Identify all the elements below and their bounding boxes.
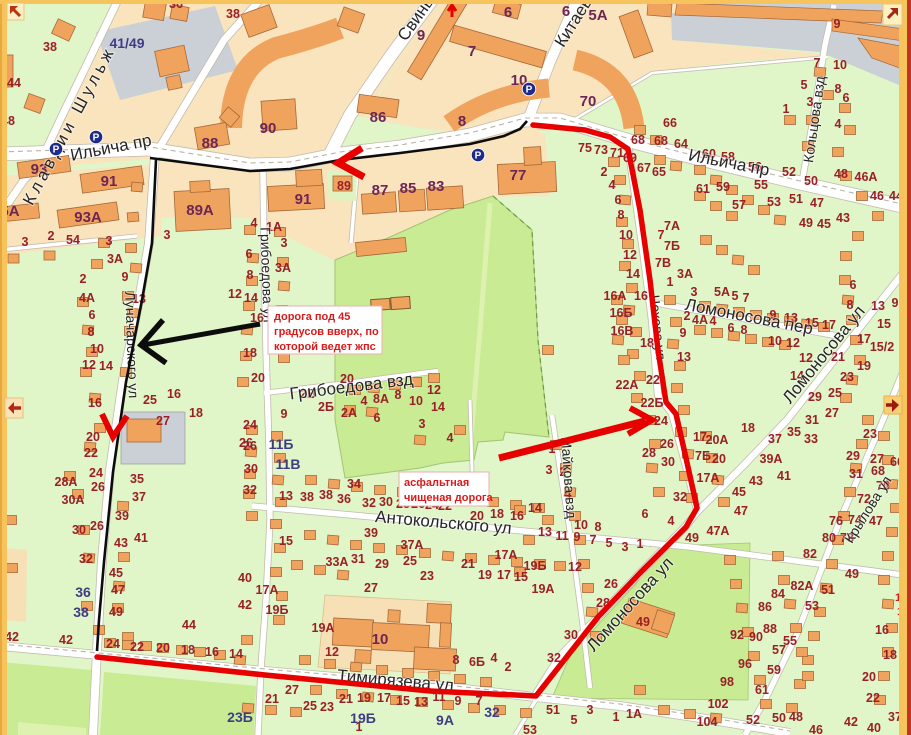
svg-text:25: 25 <box>403 554 417 568</box>
svg-text:18: 18 <box>181 643 195 657</box>
svg-text:27: 27 <box>825 406 839 420</box>
svg-text:88: 88 <box>202 135 219 152</box>
svg-text:3: 3 <box>587 703 594 717</box>
svg-text:4: 4 <box>251 216 258 230</box>
svg-text:10: 10 <box>619 228 633 242</box>
svg-text:85: 85 <box>400 180 417 197</box>
svg-text:14: 14 <box>229 647 243 661</box>
svg-text:30А: 30А <box>62 493 85 507</box>
svg-text:11В: 11В <box>276 456 301 472</box>
svg-text:53: 53 <box>767 195 781 209</box>
svg-text:90: 90 <box>260 120 277 137</box>
svg-text:46А: 46А <box>855 170 878 184</box>
svg-text:7Б: 7Б <box>664 239 680 253</box>
svg-text:33: 33 <box>804 432 818 446</box>
svg-text:17: 17 <box>377 691 391 705</box>
svg-text:49: 49 <box>636 615 650 629</box>
svg-text:102: 102 <box>708 697 729 711</box>
svg-text:12: 12 <box>325 645 339 659</box>
svg-text:98: 98 <box>720 675 734 689</box>
svg-text:89А: 89А <box>186 202 214 219</box>
svg-text:43: 43 <box>749 474 763 488</box>
svg-text:2: 2 <box>48 229 55 243</box>
svg-text:асфальтная: асфальтная <box>404 477 469 489</box>
svg-text:19Б: 19Б <box>350 710 376 726</box>
svg-text:80: 80 <box>822 531 836 545</box>
svg-text:16Б: 16Б <box>610 306 633 320</box>
svg-text:16: 16 <box>634 289 648 303</box>
svg-text:6: 6 <box>850 278 857 292</box>
svg-text:32: 32 <box>484 704 500 720</box>
svg-text:16: 16 <box>875 623 889 637</box>
svg-text:16: 16 <box>167 387 181 401</box>
svg-text:41: 41 <box>134 531 148 545</box>
svg-text:10: 10 <box>574 518 588 532</box>
svg-text:9: 9 <box>892 296 899 310</box>
svg-text:26: 26 <box>660 437 674 451</box>
svg-text:30: 30 <box>244 462 258 476</box>
svg-text:49: 49 <box>685 531 699 545</box>
svg-text:26: 26 <box>90 519 104 533</box>
svg-text:2: 2 <box>80 272 87 286</box>
svg-text:31: 31 <box>849 467 863 481</box>
svg-text:11Б: 11Б <box>269 436 294 452</box>
svg-text:30: 30 <box>564 628 578 642</box>
svg-text:52: 52 <box>746 713 760 727</box>
svg-text:4: 4 <box>491 651 498 665</box>
svg-text:89: 89 <box>337 179 351 193</box>
svg-text:3А: 3А <box>677 267 693 281</box>
svg-text:19: 19 <box>857 359 871 373</box>
svg-text:39А: 39А <box>760 452 783 466</box>
svg-text:73: 73 <box>594 143 608 157</box>
svg-text:42: 42 <box>5 630 19 644</box>
svg-text:32: 32 <box>673 490 687 504</box>
svg-text:12: 12 <box>82 358 96 372</box>
svg-text:35: 35 <box>787 425 801 439</box>
svg-text:14: 14 <box>244 291 258 305</box>
svg-text:12: 12 <box>786 336 800 350</box>
svg-text:33А: 33А <box>326 555 349 569</box>
svg-text:18: 18 <box>243 346 257 360</box>
svg-text:32: 32 <box>362 496 376 510</box>
svg-text:22: 22 <box>84 446 98 460</box>
svg-text:32: 32 <box>243 483 257 497</box>
svg-text:48: 48 <box>789 710 803 724</box>
svg-text:17: 17 <box>497 568 511 582</box>
svg-text:37: 37 <box>768 432 782 446</box>
svg-text:2: 2 <box>505 660 512 674</box>
svg-text:14: 14 <box>431 400 445 414</box>
svg-text:5: 5 <box>571 713 578 727</box>
svg-text:38: 38 <box>226 7 240 21</box>
svg-text:17А: 17А <box>495 548 518 562</box>
svg-text:P: P <box>53 145 60 156</box>
svg-text:53: 53 <box>523 723 537 735</box>
svg-text:40: 40 <box>238 571 252 585</box>
svg-text:46: 46 <box>809 723 823 735</box>
svg-text:18: 18 <box>883 648 897 662</box>
svg-text:55: 55 <box>754 178 768 192</box>
svg-text:3: 3 <box>106 234 113 248</box>
svg-text:86: 86 <box>758 600 772 614</box>
svg-text:16: 16 <box>205 645 219 659</box>
svg-text:15: 15 <box>396 694 410 708</box>
svg-text:24: 24 <box>243 418 257 432</box>
svg-text:5: 5 <box>606 536 613 550</box>
svg-text:49: 49 <box>109 605 123 619</box>
svg-text:14: 14 <box>626 267 640 281</box>
svg-text:27: 27 <box>156 414 170 428</box>
svg-text:16: 16 <box>88 396 102 410</box>
svg-text:40: 40 <box>867 721 881 735</box>
svg-text:59: 59 <box>716 180 730 194</box>
svg-text:22Б: 22Б <box>641 396 664 410</box>
svg-text:45: 45 <box>732 485 746 499</box>
svg-text:1А: 1А <box>626 707 642 721</box>
svg-text:38: 38 <box>300 490 314 504</box>
svg-text:86: 86 <box>370 109 387 126</box>
svg-text:10: 10 <box>372 631 389 648</box>
svg-text:32: 32 <box>79 552 93 566</box>
svg-text:2А: 2А <box>341 406 357 420</box>
svg-text:18: 18 <box>189 406 203 420</box>
svg-text:43: 43 <box>114 536 128 550</box>
svg-text:9: 9 <box>455 694 462 708</box>
svg-text:41: 41 <box>777 469 791 483</box>
svg-text:50: 50 <box>804 174 818 188</box>
svg-text:30: 30 <box>72 523 86 537</box>
svg-text:47: 47 <box>810 196 824 210</box>
svg-text:20: 20 <box>251 371 265 385</box>
svg-text:13: 13 <box>677 350 691 364</box>
svg-text:3: 3 <box>164 228 171 242</box>
svg-text:90: 90 <box>749 630 763 644</box>
svg-text:77: 77 <box>510 167 527 184</box>
svg-text:чищеная дорога: чищеная дорога <box>404 492 494 504</box>
svg-text:9: 9 <box>680 326 687 340</box>
svg-text:28А: 28А <box>55 475 78 489</box>
svg-text:83: 83 <box>428 178 445 195</box>
svg-text:3: 3 <box>622 540 629 554</box>
svg-text:47: 47 <box>111 583 125 597</box>
svg-text:59: 59 <box>767 663 781 677</box>
svg-text:которой ведет жпс: которой ведет жпс <box>274 341 376 353</box>
svg-text:48: 48 <box>834 167 848 181</box>
svg-text:36: 36 <box>75 584 91 600</box>
svg-text:20А: 20А <box>706 433 729 447</box>
svg-text:25: 25 <box>303 699 317 713</box>
svg-text:1: 1 <box>667 275 674 289</box>
svg-text:52: 52 <box>782 165 796 179</box>
svg-text:7: 7 <box>743 291 750 305</box>
svg-text:23: 23 <box>320 700 334 714</box>
svg-text:дорога под 45: дорога под 45 <box>274 311 350 323</box>
svg-text:84: 84 <box>771 587 785 601</box>
svg-text:68: 68 <box>654 134 668 148</box>
svg-text:1: 1 <box>613 710 620 724</box>
svg-text:15/2: 15/2 <box>870 340 894 354</box>
svg-text:27: 27 <box>364 581 378 595</box>
svg-text:26: 26 <box>91 480 105 494</box>
svg-text:10: 10 <box>409 394 423 408</box>
svg-text:P: P <box>475 151 482 162</box>
svg-text:37А: 37А <box>401 538 424 552</box>
svg-text:7А: 7А <box>664 219 680 233</box>
svg-text:25: 25 <box>143 393 157 407</box>
svg-text:1: 1 <box>783 102 790 116</box>
svg-text:11: 11 <box>555 529 568 543</box>
svg-text:4: 4 <box>609 178 616 192</box>
svg-text:87: 87 <box>372 182 389 199</box>
svg-text:50: 50 <box>772 711 786 725</box>
svg-text:6: 6 <box>615 193 622 207</box>
svg-text:23: 23 <box>840 370 854 384</box>
svg-text:44: 44 <box>182 618 196 632</box>
svg-text:8: 8 <box>618 208 625 222</box>
svg-text:градусов вверх, по: градусов вверх, по <box>274 326 379 338</box>
svg-text:22: 22 <box>866 691 880 705</box>
svg-text:51: 51 <box>546 703 560 717</box>
svg-text:21: 21 <box>461 557 475 571</box>
svg-text:8: 8 <box>835 82 842 96</box>
svg-text:24: 24 <box>89 466 103 480</box>
svg-text:39: 39 <box>364 526 378 540</box>
svg-text:8: 8 <box>247 268 254 282</box>
svg-text:61: 61 <box>696 182 710 196</box>
svg-text:43: 43 <box>836 211 850 225</box>
svg-text:31: 31 <box>805 413 819 427</box>
svg-text:66: 66 <box>663 116 677 130</box>
svg-text:12: 12 <box>623 248 637 262</box>
svg-text:22А: 22А <box>616 378 639 392</box>
svg-text:25: 25 <box>828 386 842 400</box>
svg-text:12: 12 <box>427 383 441 397</box>
svg-text:20: 20 <box>156 641 170 655</box>
svg-text:49: 49 <box>799 216 813 230</box>
svg-text:10: 10 <box>768 334 782 348</box>
svg-text:13: 13 <box>538 525 552 539</box>
svg-text:34: 34 <box>347 477 361 491</box>
svg-text:9А: 9А <box>436 712 454 728</box>
svg-text:76: 76 <box>829 514 843 528</box>
svg-text:41/49: 41/49 <box>109 35 144 51</box>
svg-text:20: 20 <box>862 670 876 684</box>
svg-text:19: 19 <box>357 691 371 705</box>
svg-text:47А: 47А <box>707 524 730 538</box>
svg-text:7: 7 <box>590 533 597 547</box>
svg-text:12: 12 <box>568 560 582 574</box>
svg-text:39: 39 <box>115 509 129 523</box>
svg-text:6: 6 <box>89 308 96 322</box>
svg-text:3: 3 <box>22 235 29 249</box>
svg-text:17А: 17А <box>256 583 279 597</box>
svg-text:6: 6 <box>246 247 253 261</box>
svg-text:57: 57 <box>732 198 746 212</box>
svg-text:96: 96 <box>738 657 752 671</box>
svg-text:6: 6 <box>843 91 850 105</box>
svg-text:29: 29 <box>846 449 860 463</box>
svg-text:27: 27 <box>285 683 299 697</box>
svg-text:21: 21 <box>339 692 353 706</box>
svg-text:19А: 19А <box>312 621 335 635</box>
svg-text:7В: 7В <box>655 256 671 270</box>
svg-text:10: 10 <box>833 58 847 72</box>
svg-text:38: 38 <box>319 488 333 502</box>
svg-text:3: 3 <box>419 417 426 431</box>
svg-text:3: 3 <box>281 236 288 250</box>
svg-text:4: 4 <box>835 117 842 131</box>
svg-text:8А: 8А <box>373 392 389 406</box>
svg-text:1: 1 <box>356 720 363 734</box>
svg-text:21: 21 <box>265 692 279 706</box>
svg-text:75: 75 <box>578 141 592 155</box>
svg-text:51: 51 <box>821 583 835 597</box>
svg-text:7: 7 <box>814 56 821 70</box>
svg-text:29: 29 <box>375 557 389 571</box>
svg-text:6: 6 <box>374 411 381 425</box>
svg-text:22: 22 <box>646 373 660 387</box>
svg-text:18: 18 <box>741 421 755 435</box>
svg-text:9: 9 <box>834 17 841 31</box>
svg-text:1: 1 <box>637 537 644 551</box>
svg-text:93А: 93А <box>74 209 102 226</box>
svg-text:5: 5 <box>732 289 739 303</box>
svg-text:14: 14 <box>99 359 113 373</box>
svg-text:19Б: 19Б <box>266 603 289 617</box>
svg-text:9: 9 <box>281 407 288 421</box>
svg-text:37: 37 <box>132 490 146 504</box>
svg-text:2Б: 2Б <box>318 400 334 414</box>
svg-text:88: 88 <box>763 622 777 636</box>
svg-text:4: 4 <box>447 431 454 445</box>
svg-text:82: 82 <box>803 547 817 561</box>
svg-text:24: 24 <box>106 637 120 651</box>
svg-text:13: 13 <box>279 489 293 503</box>
svg-text:19Б: 19Б <box>524 559 547 573</box>
svg-text:104: 104 <box>697 715 718 729</box>
svg-text:4: 4 <box>668 514 675 528</box>
svg-text:7: 7 <box>468 43 476 60</box>
svg-text:20: 20 <box>712 452 726 466</box>
svg-text:4: 4 <box>361 394 368 408</box>
svg-text:57: 57 <box>772 643 786 657</box>
svg-text:19: 19 <box>478 568 492 582</box>
svg-text:23: 23 <box>420 569 434 583</box>
svg-text:3А: 3А <box>107 252 123 266</box>
svg-text:7Б: 7Б <box>695 449 711 463</box>
svg-text:42: 42 <box>238 598 252 612</box>
svg-text:70: 70 <box>580 93 597 110</box>
svg-text:30: 30 <box>661 455 675 469</box>
svg-text:15: 15 <box>877 317 891 331</box>
svg-text:51: 51 <box>789 192 803 206</box>
svg-text:17А: 17А <box>697 471 720 485</box>
svg-text:92: 92 <box>730 628 744 642</box>
svg-text:P: P <box>526 85 533 96</box>
svg-text:15: 15 <box>279 534 293 548</box>
svg-text:42: 42 <box>844 715 858 729</box>
svg-text:23Б: 23Б <box>227 709 253 725</box>
svg-text:65: 65 <box>652 165 666 179</box>
svg-text:13: 13 <box>871 299 885 313</box>
svg-text:6: 6 <box>642 507 649 521</box>
svg-text:47: 47 <box>734 504 748 518</box>
svg-text:67: 67 <box>637 161 651 175</box>
svg-text:8: 8 <box>88 325 95 339</box>
svg-text:26: 26 <box>239 436 253 450</box>
svg-text:12: 12 <box>228 287 242 301</box>
svg-text:46: 46 <box>870 189 884 203</box>
svg-text:8: 8 <box>458 113 466 130</box>
svg-text:36: 36 <box>337 492 351 506</box>
svg-text:3А: 3А <box>275 261 291 275</box>
svg-text:29: 29 <box>808 390 822 404</box>
svg-text:9: 9 <box>122 270 129 284</box>
svg-text:23: 23 <box>863 427 877 441</box>
svg-text:20: 20 <box>86 430 100 444</box>
svg-text:68: 68 <box>631 133 645 147</box>
svg-text:91: 91 <box>101 173 118 190</box>
svg-text:13: 13 <box>414 695 428 709</box>
svg-text:61: 61 <box>755 683 769 697</box>
svg-text:26: 26 <box>604 577 618 591</box>
svg-text:53: 53 <box>805 599 819 613</box>
svg-text:10: 10 <box>90 342 104 356</box>
svg-text:3: 3 <box>546 463 553 477</box>
svg-text:38: 38 <box>43 40 57 54</box>
svg-text:2: 2 <box>601 165 608 179</box>
svg-text:35: 35 <box>130 472 144 486</box>
svg-text:9: 9 <box>574 530 581 544</box>
svg-text:28: 28 <box>642 446 656 460</box>
svg-text:82А: 82А <box>791 579 814 593</box>
svg-text:14: 14 <box>528 501 542 515</box>
svg-text:22: 22 <box>130 640 144 654</box>
svg-text:6Б: 6Б <box>469 655 485 669</box>
svg-text:91: 91 <box>295 191 312 208</box>
svg-text:44: 44 <box>7 76 21 90</box>
svg-text:19А: 19А <box>532 582 555 596</box>
svg-text:45: 45 <box>109 566 123 580</box>
svg-text:64: 64 <box>674 137 688 151</box>
svg-text:4А: 4А <box>79 291 95 305</box>
svg-text:16А: 16А <box>604 289 627 303</box>
svg-text:45: 45 <box>817 217 831 231</box>
svg-text:5А: 5А <box>714 285 730 299</box>
svg-text:38: 38 <box>73 604 89 620</box>
svg-text:8: 8 <box>453 653 460 667</box>
svg-text:54: 54 <box>66 233 80 247</box>
svg-text:16В: 16В <box>611 324 634 338</box>
svg-text:6: 6 <box>504 4 512 21</box>
svg-text:8: 8 <box>595 520 602 534</box>
svg-text:5: 5 <box>801 78 808 92</box>
svg-text:42: 42 <box>59 633 73 647</box>
svg-text:31: 31 <box>351 552 365 566</box>
svg-text:49: 49 <box>845 567 859 581</box>
svg-text:P: P <box>93 133 100 144</box>
